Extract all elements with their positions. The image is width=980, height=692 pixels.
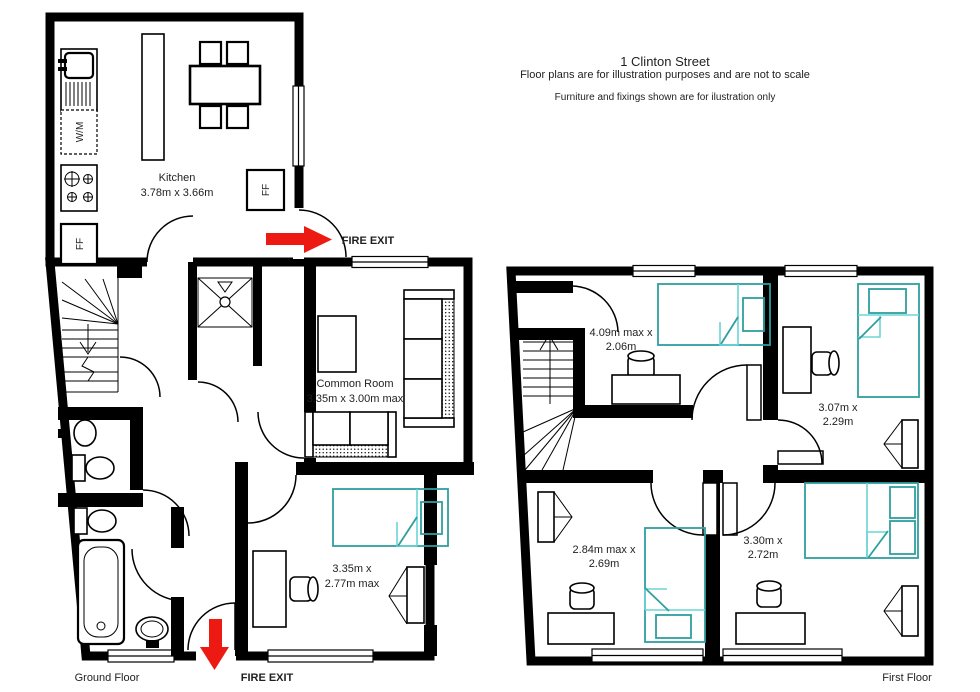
bedroom2-desk-icon <box>783 327 811 393</box>
kitchen-window <box>293 86 304 166</box>
page-title: 1 Clinton Street <box>420 54 910 69</box>
bedroom1-dims-line1: 4.09m max x <box>590 327 653 339</box>
kitchen-door-opening <box>147 257 193 268</box>
bath-icon <box>78 540 124 644</box>
ground-floor-label: Ground Floor <box>75 672 140 684</box>
bathroom-window <box>108 650 174 662</box>
fridge-freezer-left-icon: FF <box>61 224 97 264</box>
bedroom2-dims-line1: 3.07m x <box>818 402 858 414</box>
bedroom3-dims-line1: 2.84m max x <box>573 544 636 556</box>
bedroom2-dims-line2: 2.29m <box>823 416 854 428</box>
plan-header: 1 Clinton Street Floor plans are for ill… <box>420 54 910 104</box>
floorplan-page: 1 Clinton Street Floor plans are for ill… <box>0 0 980 692</box>
first-floor-svg: 4.09m max x 2.06m 3.07m x 2.29m 2.84m ma… <box>495 260 945 685</box>
washing-machine-label: W/M <box>75 122 86 143</box>
wc-toilet-icon <box>72 455 114 481</box>
first-floor-label: First Floor <box>882 672 932 684</box>
sink-icon <box>58 49 97 111</box>
sofa-bottom-icon <box>305 412 396 457</box>
bedroom2-door-leaf <box>778 451 823 464</box>
bedroom3-chair-icon <box>570 583 594 609</box>
bedroom4-dims-line1: 3.30m x <box>743 535 783 547</box>
kitchen-counter <box>142 34 164 160</box>
bedroom4-chair-icon <box>757 581 781 607</box>
common-room-dims-label: 3.35m x 3.00m max <box>307 393 404 405</box>
kitchen-name-label: Kitchen <box>159 172 196 184</box>
bedroom4-door-leaf <box>723 483 737 535</box>
common-room-name-label: Common Room <box>316 378 393 390</box>
ground-floor-plan: W/M FF <box>50 17 474 684</box>
fire-exit-side-label: FIRE EXIT <box>342 235 395 247</box>
bedroom1-chair-icon <box>628 351 654 378</box>
ground-bedroom-dims-line1: 3.35m x <box>332 563 372 575</box>
bedroom3-window <box>592 649 703 662</box>
bedroom1-desk-icon <box>612 375 680 404</box>
fridge-freezer-right-label: FF <box>261 184 272 196</box>
bedroom3-dims-line2: 2.69m <box>589 558 620 570</box>
bedroom2-window <box>785 266 857 277</box>
ground-bedroom-dims-line2: 2.77m max <box>325 578 380 590</box>
bedroom4-desk-icon <box>736 613 805 644</box>
chair-icon <box>290 577 318 601</box>
bedroom1-dims-line2: 2.06m <box>606 341 637 353</box>
fridge-freezer-right-icon: FF <box>247 170 284 210</box>
page-note: Furniture and fixings shown are for ilus… <box>420 92 910 104</box>
fridge-freezer-left-label: FF <box>75 238 86 250</box>
bedroom2-chair-icon <box>812 351 839 375</box>
hob-icon <box>61 165 97 211</box>
bathroom-toilet-icon <box>74 508 116 534</box>
desk-icon <box>253 551 286 627</box>
bedroom1-door-leaf <box>747 365 761 420</box>
bedroom3-desk-icon <box>548 613 614 644</box>
bedroom1-window <box>633 266 695 277</box>
common-room-window <box>352 257 428 268</box>
bedroom-window <box>268 650 373 662</box>
bedroom4-window <box>723 649 842 662</box>
sofa-right-icon <box>404 290 454 427</box>
coffee-table-icon <box>318 316 356 372</box>
kitchen-dims-label: 3.78m x 3.66m <box>141 187 214 199</box>
ground-floor-svg: W/M FF <box>40 8 480 688</box>
first-floor-plan: 4.09m max x 2.06m 3.07m x 2.29m 2.84m ma… <box>511 266 932 685</box>
page-subtitle: Floor plans are for illustration purpose… <box>420 69 910 82</box>
fire-exit-front-label: FIRE EXIT <box>241 672 294 684</box>
bedroom4-dims-line2: 2.72m <box>748 549 779 561</box>
washing-machine-icon: W/M <box>61 110 97 154</box>
